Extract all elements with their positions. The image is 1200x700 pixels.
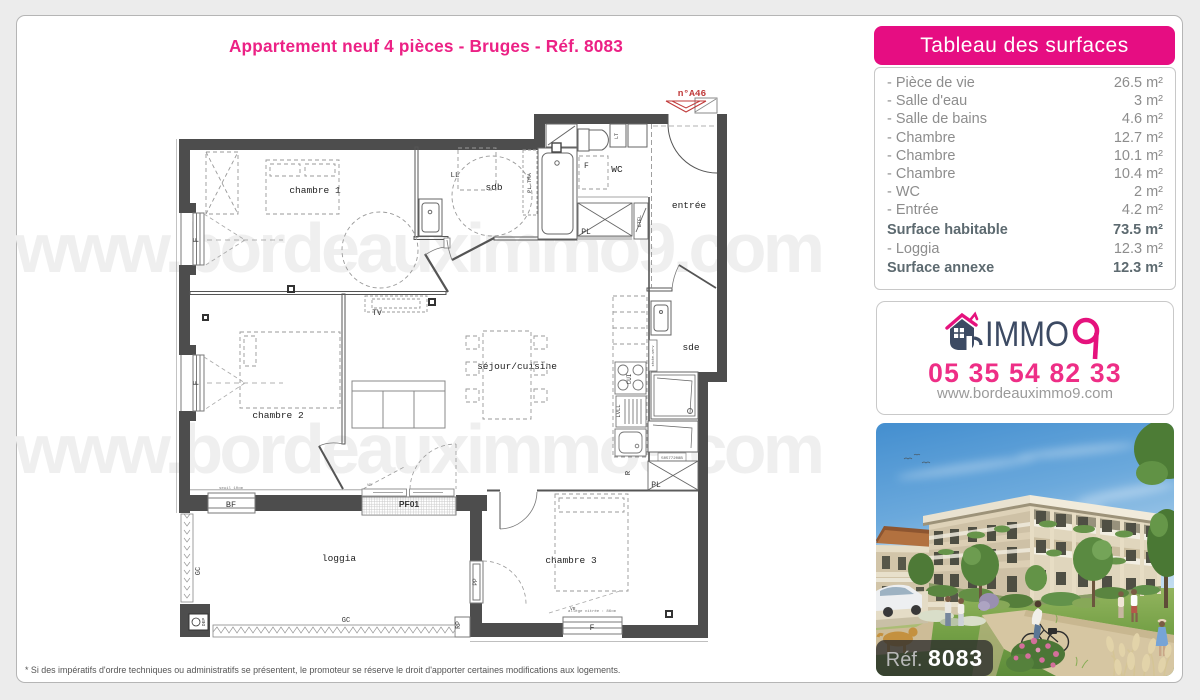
svg-text:GC: GC: [195, 567, 203, 575]
svg-text:F: F: [193, 237, 202, 242]
svg-text:LL: LL: [450, 172, 460, 180]
svg-text:entrée: entrée: [672, 200, 707, 211]
svg-text:ETEL: ETEL: [637, 215, 643, 227]
svg-text:WC: WC: [611, 164, 623, 175]
svg-text:PF01: PF01: [399, 499, 420, 509]
svg-text:F: F: [193, 380, 202, 385]
svg-text:PL: PL: [581, 228, 591, 237]
svg-text:chambre 1: chambre 1: [289, 185, 341, 196]
svg-text:VR: VR: [570, 606, 576, 612]
svg-text:LT: LT: [614, 133, 620, 139]
svg-text:BF: BF: [226, 500, 236, 510]
svg-text:VR: VR: [367, 484, 372, 488]
svg-text:PL: PL: [651, 481, 661, 490]
svg-text:loggia: loggia: [322, 553, 357, 564]
svg-text:GC: GC: [342, 617, 350, 625]
svg-text:n°A46: n°A46: [678, 88, 707, 99]
svg-text:RP: RP: [455, 621, 462, 629]
svg-text:seuil 10cm: seuil 10cm: [219, 486, 244, 491]
svg-text:PL TMA: PL TMA: [526, 172, 533, 193]
svg-text:sdb: sdb: [485, 182, 502, 193]
svg-text:IMMO: IMMO: [985, 315, 1069, 354]
svg-text:F: F: [584, 162, 589, 171]
svg-text:PP: PP: [472, 578, 479, 586]
svg-text:sde: sde: [682, 342, 699, 353]
svg-text:50577208B: 50577208B: [661, 457, 683, 461]
svg-text:séjour/cuisine: séjour/cuisine: [477, 361, 557, 372]
svg-text:CUI: CUI: [626, 374, 633, 385]
svg-text:sèche-serv: sèche-serv: [651, 345, 656, 366]
svg-text:DEP: DEP: [201, 618, 207, 626]
svg-text:chambre 3: chambre 3: [545, 555, 597, 566]
svg-text:chambre 2: chambre 2: [252, 410, 304, 421]
svg-text:LVLL: LVLL: [615, 404, 622, 417]
svg-text:TV: TV: [372, 309, 382, 318]
svg-text:F: F: [590, 624, 595, 633]
